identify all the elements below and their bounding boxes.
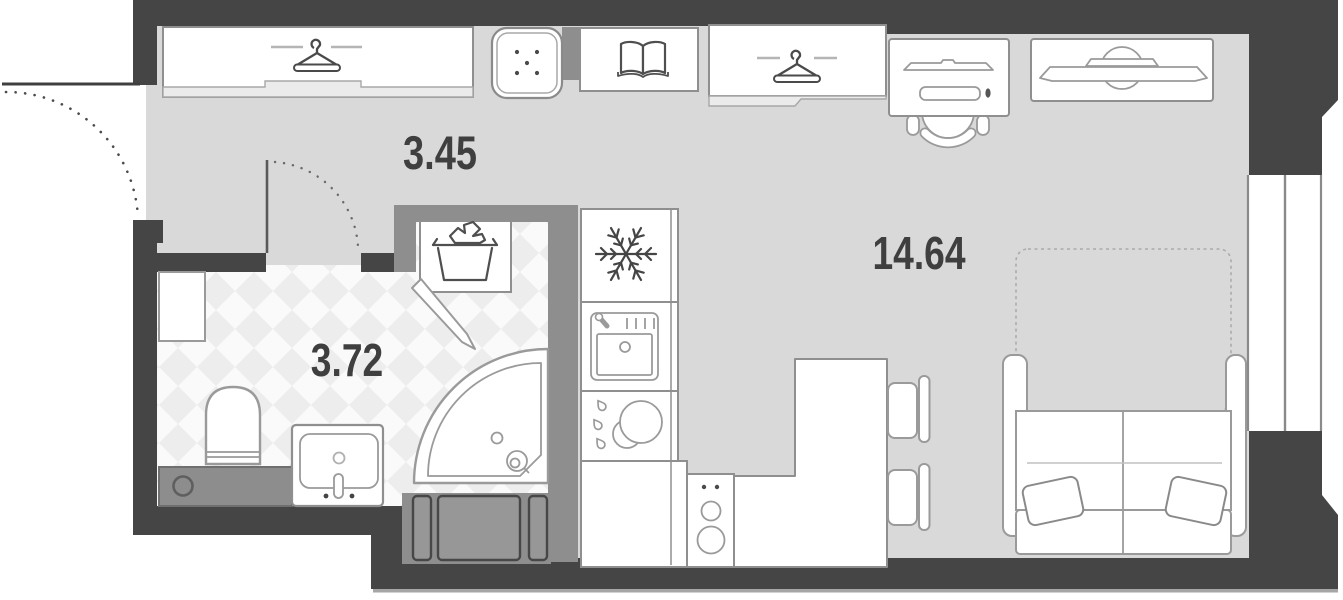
svg-text:3.72: 3.72 [311,334,383,386]
svg-text:3.45: 3.45 [403,127,477,180]
svg-text:14.64: 14.64 [872,227,966,279]
